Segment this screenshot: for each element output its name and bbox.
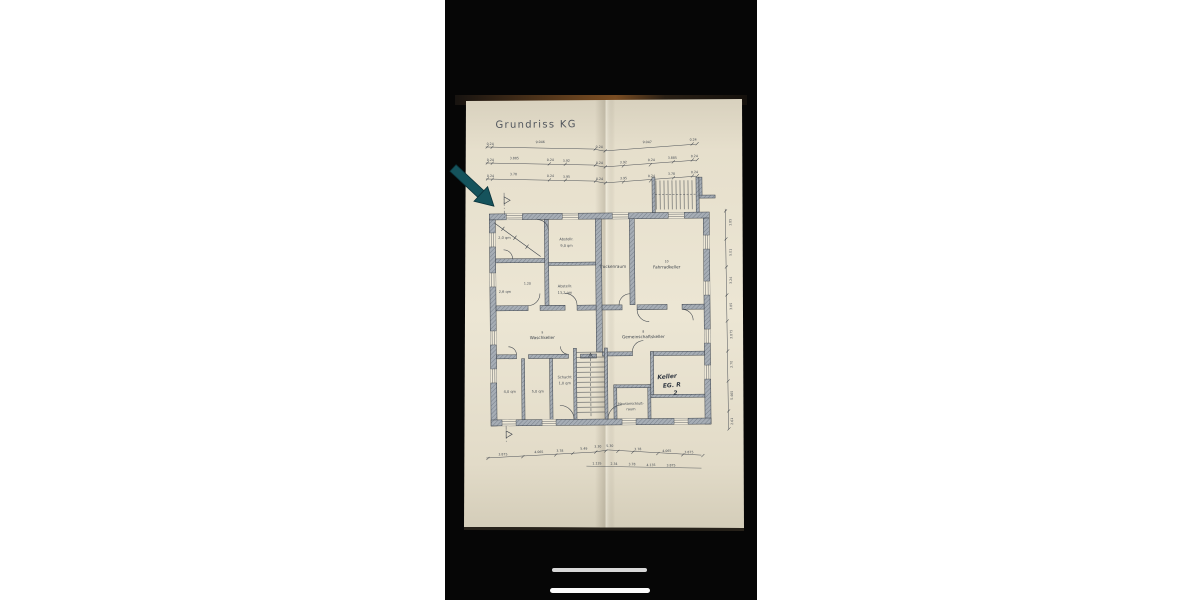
- plan-title: Grundriss KG: [495, 119, 576, 131]
- dim-label: 2.70: [730, 361, 734, 368]
- dim-label: 3.875: [498, 452, 507, 456]
- dim-label: 3.885: [668, 156, 677, 160]
- room-label-abstell2-area: 13,2 qm: [558, 291, 573, 295]
- dim-label: 3.78: [556, 449, 563, 453]
- svg-text:EG. R: EG. R: [663, 381, 682, 389]
- dim-label: 4.065: [662, 449, 671, 453]
- dim-label: 2.61: [730, 418, 734, 425]
- dim-label: 2.34: [610, 462, 617, 466]
- carousel-indicator-line-2: [550, 588, 650, 593]
- dim-label: 0.24: [547, 158, 554, 162]
- dim-label: 0.24: [547, 174, 554, 178]
- room-label-fahrradkeller: Fahrradkeller: [653, 264, 681, 269]
- room-label-gemeinschaftskeller: Gemeinschaftskeller: [622, 334, 665, 339]
- room-label-abstell2-name: Abstellr.: [558, 284, 572, 288]
- dim-label: 3.30: [594, 445, 601, 449]
- cell-label-1: 4,0 qm: [504, 390, 517, 394]
- dim-label: 3.95: [563, 175, 570, 179]
- room-number-waschkeller: 9: [541, 331, 543, 335]
- dim-label: 3.78: [668, 172, 675, 176]
- cell-label-3-area: 1,0 qm: [559, 381, 572, 385]
- screen: Grundriss KG 0.24 9.046 0.24 9.047 0.24 …: [0, 0, 1200, 600]
- dim-label: 3.24: [729, 277, 733, 284]
- dim-label: 5.465: [730, 391, 734, 400]
- inner-dimension: 1.20: [524, 282, 531, 286]
- dim-label: 3.78: [628, 462, 635, 466]
- dim-label: 3.95: [620, 176, 627, 180]
- dim-label: 3.875: [729, 330, 733, 339]
- room-label-waschkeller: Waschkeller: [530, 335, 555, 340]
- cell-label-3-name: Schacht: [558, 375, 573, 379]
- room-label-a: 2,0 qm: [498, 236, 511, 240]
- dim-label: 5.49: [580, 447, 587, 451]
- dim-label: 0.24: [596, 177, 603, 181]
- dim-label: 3.875: [684, 450, 693, 454]
- room-number-gemeinschaftskeller: 8: [642, 330, 644, 334]
- dim-label: 4.065: [534, 450, 543, 454]
- room-label-trockenraum: Trockenraum: [598, 264, 626, 269]
- dim-label: 9.047: [643, 140, 652, 144]
- room-label-abstell1-area: 9,0 qm: [560, 244, 573, 248]
- dim-label: 0.24: [691, 170, 698, 174]
- dim-label: 3.92: [620, 160, 627, 164]
- dim-label: 4.135: [646, 463, 655, 467]
- dim-label: 3.78: [510, 172, 517, 176]
- carousel-indicator-line-1: [552, 568, 647, 572]
- cell-label-2: 5,0 qm: [532, 389, 545, 393]
- room-label-abstell1-name: Abstellr.: [559, 237, 573, 241]
- dim-label: 0.24: [596, 161, 603, 165]
- dim-label: 0.24: [487, 142, 494, 146]
- room-number-fahrradkeller: 10: [665, 259, 669, 263]
- room-label-hausanschluss-1: Hausanschluß-: [618, 402, 645, 406]
- svg-text:2: 2: [673, 390, 678, 397]
- dim-label: 3.885: [510, 156, 519, 160]
- dim-label: 0.24: [691, 154, 698, 158]
- room-label-b: 2,6 qm: [499, 290, 512, 294]
- dim-label: 3.875: [666, 463, 675, 467]
- dim-label: 9.046: [536, 140, 545, 144]
- dim-label: 1.135: [592, 462, 601, 466]
- dim-label: 0.24: [596, 145, 603, 149]
- photo-viewer[interactable]: Grundriss KG 0.24 9.046 0.24 9.047 0.24 …: [445, 0, 757, 600]
- dim-label: 3.85: [729, 303, 733, 310]
- dim-label: 0.24: [487, 174, 494, 178]
- dim-label: 5.01: [729, 249, 733, 256]
- dim-label: 1.85: [728, 219, 732, 226]
- dim-label: 0.24: [690, 138, 697, 142]
- dim-label: 0.24: [648, 158, 655, 162]
- room-label-hausanschluss-2: raum: [626, 407, 636, 411]
- dim-label: 5.30: [606, 444, 613, 448]
- dim-label: 3.92: [563, 159, 570, 163]
- dim-label: 0.24: [487, 158, 494, 162]
- dim-label: 3.78: [634, 447, 641, 451]
- floorplan-photo: Grundriss KG 0.24 9.046 0.24 9.047 0.24 …: [445, 0, 757, 600]
